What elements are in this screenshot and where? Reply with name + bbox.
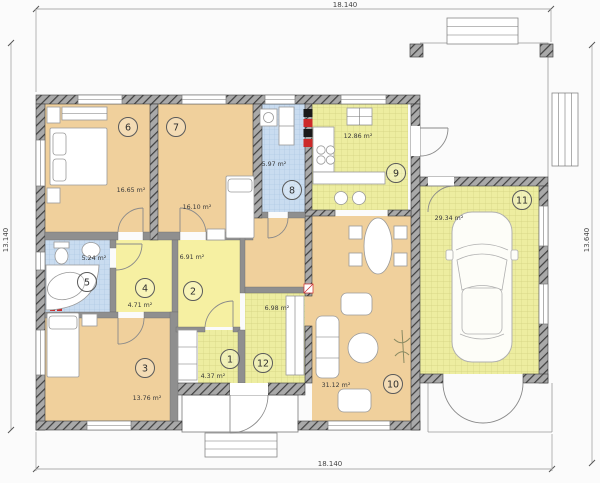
- wall-garage-bottom-right: [523, 374, 548, 383]
- dimension-left: 13.140: [2, 40, 14, 433]
- window-bath-left: [36, 252, 45, 270]
- room-6-area: 16.65 m²: [117, 187, 146, 194]
- window-room6-left: [36, 140, 45, 186]
- room-11-area: 29.34 m²: [435, 215, 464, 222]
- room-8-number: 8: [289, 186, 295, 197]
- window-room8-top: [265, 95, 295, 104]
- room-6-number: 6: [125, 123, 131, 134]
- window-garage-right-1: [539, 206, 548, 246]
- window-room3-bottom: [87, 421, 131, 430]
- windshield: [457, 254, 507, 290]
- dim-top-label: 18.140: [333, 1, 358, 9]
- porch-top-right: [410, 18, 578, 177]
- wall-vestibule-bottom-right: [268, 383, 305, 395]
- dim-bottom-label: 18.140: [318, 460, 343, 468]
- wall-living-left-lower: [305, 326, 312, 383]
- toilet: [54, 242, 69, 248]
- wall-jamb-mark: [304, 284, 313, 293]
- room-11-number: 11: [516, 196, 528, 207]
- room-7-area: 16.10 m²: [183, 204, 212, 211]
- storage-1-closet: [178, 330, 197, 380]
- window-room6-top: [78, 95, 122, 104]
- wall-kitchen-stub-left: [305, 210, 335, 216]
- room-10-area: 31.12 m²: [322, 382, 351, 389]
- floor-plan-page: 1 4.37 m² 2 6.91 m² 3 13.76 m² 4 4.71 m²…: [0, 0, 600, 483]
- room-12-number: 12: [257, 359, 269, 370]
- room-4-number: 4: [142, 284, 148, 295]
- dimension-right: 13.640: [583, 42, 595, 466]
- porch-post-left: [410, 44, 423, 57]
- dimension-top: 18.140: [33, 1, 554, 92]
- room-10-opening-floor: [305, 296, 312, 326]
- room-12-area: 6.98 m²: [265, 305, 290, 312]
- car-roof: [462, 288, 502, 334]
- stool: [335, 192, 348, 205]
- room-3-area: 13.76 m²: [133, 395, 162, 402]
- room-4-area: 4.71 m²: [128, 302, 153, 309]
- entrance-porch: [182, 395, 298, 432]
- porch-boundary: [420, 43, 548, 177]
- floor-plan-drawing: 1 4.37 m² 2 6.91 m² 3 13.76 m² 4 4.71 m²…: [0, 0, 600, 483]
- window-garage-right-2: [539, 284, 548, 324]
- steps-top: [447, 18, 518, 44]
- dining-table: [364, 218, 392, 274]
- garage-car: [446, 212, 518, 362]
- wall-vestibule-bottom-left: [176, 383, 230, 395]
- room-2-number: 2: [190, 287, 196, 298]
- room-5-area: 5.24 m²: [82, 255, 107, 262]
- room-9-number: 9: [393, 169, 399, 180]
- wall-6-7: [150, 104, 158, 240]
- driveway: [428, 383, 552, 432]
- door-front: [420, 128, 448, 156]
- dim-left-label: 13.140: [2, 228, 10, 253]
- porch-bottom: [182, 395, 298, 457]
- coffee-table: [348, 333, 378, 363]
- sofa: [316, 316, 339, 378]
- window-kitchen-top: [341, 95, 386, 104]
- wall-garage-bottom-left: [420, 374, 443, 383]
- room-8-area: 5.97 m²: [262, 161, 287, 168]
- steps-bottom: [205, 433, 277, 457]
- room-2-area: 6.91 m²: [180, 254, 205, 261]
- entrance-door-gap: [230, 383, 268, 395]
- room-7-number: 7: [173, 123, 179, 134]
- dimension-bottom: 18.140: [33, 432, 555, 472]
- window-living-bottom: [328, 421, 390, 430]
- porch-post-right: [540, 44, 553, 57]
- front-door-gap: [411, 126, 420, 156]
- room-10-number: 10: [387, 380, 399, 391]
- room-3-number: 3: [142, 364, 148, 375]
- room-1-area: 4.37 m²: [201, 373, 226, 380]
- room-1-number: 1: [227, 355, 233, 366]
- garage-side-door-gap: [428, 177, 454, 186]
- room-5-number: 5: [84, 278, 90, 289]
- stove-burner: [317, 146, 325, 154]
- window-room3-left: [36, 330, 45, 375]
- dim-right-label: 13.640: [583, 228, 591, 253]
- wall-kitchen-stub-right: [388, 210, 411, 216]
- window-room7-top: [182, 95, 226, 104]
- room-9-area: 12.86 m²: [344, 133, 373, 140]
- steps-right: [552, 93, 578, 166]
- door-garage-gate: [443, 383, 523, 423]
- armchair: [341, 293, 372, 315]
- kitchen-peninsula: [313, 172, 385, 184]
